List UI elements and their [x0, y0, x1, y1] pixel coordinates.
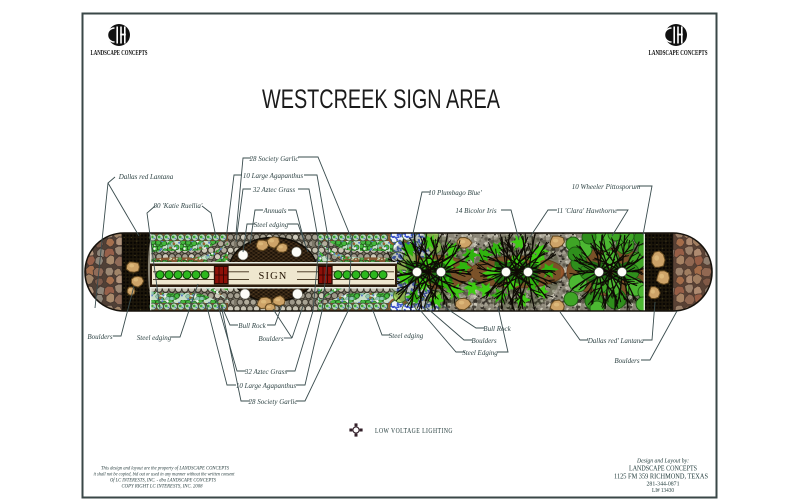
- svg-text:COPY RIGHT LC INTERESTS, INC.: COPY RIGHT LC INTERESTS, INC. 2008: [122, 485, 204, 490]
- svg-text:Steel Edging: Steel Edging: [462, 349, 498, 357]
- svg-text:Of LC INTERESTS, INC. - dba LA: Of LC INTERESTS, INC. - dba LANDSCAPE CO…: [110, 479, 217, 484]
- svg-text:32 Aztec Grass: 32 Aztec Grass: [244, 368, 288, 376]
- svg-text:10 Plumbago Blue': 10 Plumbago Blue': [428, 189, 482, 197]
- svg-text:Bull Rock: Bull Rock: [238, 322, 266, 330]
- svg-text:1125 FM 359 RICHMOND, TEXAS: 1125 FM 359 RICHMOND, TEXAS: [614, 473, 708, 481]
- svg-text:Bull Rock: Bull Rock: [483, 325, 511, 333]
- svg-text:Design and Layout by:: Design and Layout by:: [636, 458, 689, 465]
- svg-text:This design and layout are the: This design and layout are the property …: [101, 467, 230, 472]
- svg-text:LANDSCAPE CONCEPTS: LANDSCAPE CONCEPTS: [91, 48, 148, 57]
- svg-text:'Dallas red' Lantana: 'Dallas red' Lantana: [586, 337, 644, 345]
- svg-text:Boulders: Boulders: [87, 333, 113, 341]
- svg-text:Boulders: Boulders: [614, 357, 640, 365]
- svg-text:10 Wheeler Pittosporum: 10 Wheeler Pittosporum: [572, 183, 640, 191]
- svg-text:it shall not be copied, bid ou: it shall not be copied, bid out or used …: [94, 473, 236, 478]
- svg-text:LANDSCAPE CONCEPTS: LANDSCAPE CONCEPTS: [629, 465, 697, 473]
- svg-text:Steel edging: Steel edging: [389, 332, 424, 340]
- svg-text:10 Large Agapanthus: 10 Large Agapanthus: [243, 172, 304, 180]
- svg-text:Boulders: Boulders: [471, 337, 497, 345]
- svg-text:LI# 13430: LI# 13430: [652, 487, 674, 494]
- svg-text:LOW VOLTAGE LIGHTING: LOW VOLTAGE LIGHTING: [375, 427, 453, 435]
- svg-text:10 Large Agapanthus: 10 Large Agapanthus: [236, 382, 297, 390]
- svg-text:28 Society Garlic: 28 Society Garlic: [249, 398, 299, 406]
- svg-text:Dallas red Lantana: Dallas red Lantana: [118, 173, 174, 181]
- svg-text:80 'Katie Ruellia': 80 'Katie Ruellia': [154, 202, 203, 210]
- svg-text:LANDSCAPE CONCEPTS: LANDSCAPE CONCEPTS: [649, 48, 708, 57]
- svg-text:Steel edging: Steel edging: [137, 334, 172, 342]
- svg-text:Annuals: Annuals: [263, 207, 287, 215]
- svg-text:WESTCREEK SIGN AREA: WESTCREEK SIGN AREA: [262, 84, 500, 114]
- svg-text:28 Society Garlic: 28 Society Garlic: [250, 155, 300, 163]
- svg-text:Steel edging: Steel edging: [254, 221, 289, 229]
- svg-text:14 Bicolor Iris: 14 Bicolor Iris: [455, 207, 496, 215]
- svg-text:32 Aztec Grass: 32 Aztec Grass: [252, 186, 296, 194]
- svg-text:SIGN: SIGN: [259, 271, 288, 282]
- svg-text:11 'Clara' Hawthorne: 11 'Clara' Hawthorne: [557, 207, 618, 215]
- svg-text:Boulders: Boulders: [258, 335, 284, 343]
